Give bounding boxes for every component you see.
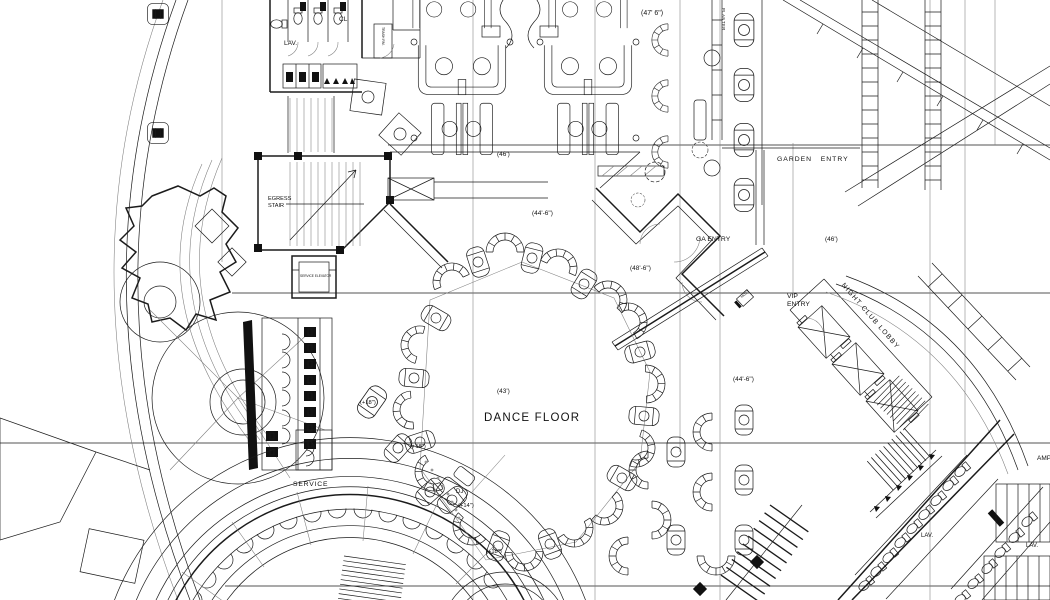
- fixture-marker-icon: [148, 123, 169, 144]
- floor-plan-page: LAV. CL TRASH RM. (47' 6") PLANTER (46')…: [0, 0, 1050, 600]
- elevator-icon: [863, 377, 920, 436]
- service-elevator: [292, 256, 336, 298]
- left-garden-structures: [0, 0, 421, 600]
- egress-stair: [254, 152, 548, 268]
- lavatories-bottom-right: [693, 420, 1050, 600]
- restroom-top-left: [270, 0, 420, 153]
- elevator-icon: [795, 303, 852, 362]
- amphitheater-seating: [113, 438, 587, 600]
- right-walls: [783, 0, 1050, 206]
- elevator-icon: [829, 340, 886, 399]
- dining-booths-top: [390, 0, 762, 212]
- fixture-marker-icon: [148, 4, 169, 25]
- service-bar: [243, 318, 332, 470]
- vip-elevators-lobby: [790, 263, 1030, 490]
- floor-plan-drawing: [0, 0, 1050, 600]
- column-grid-lines: [0, 0, 1050, 600]
